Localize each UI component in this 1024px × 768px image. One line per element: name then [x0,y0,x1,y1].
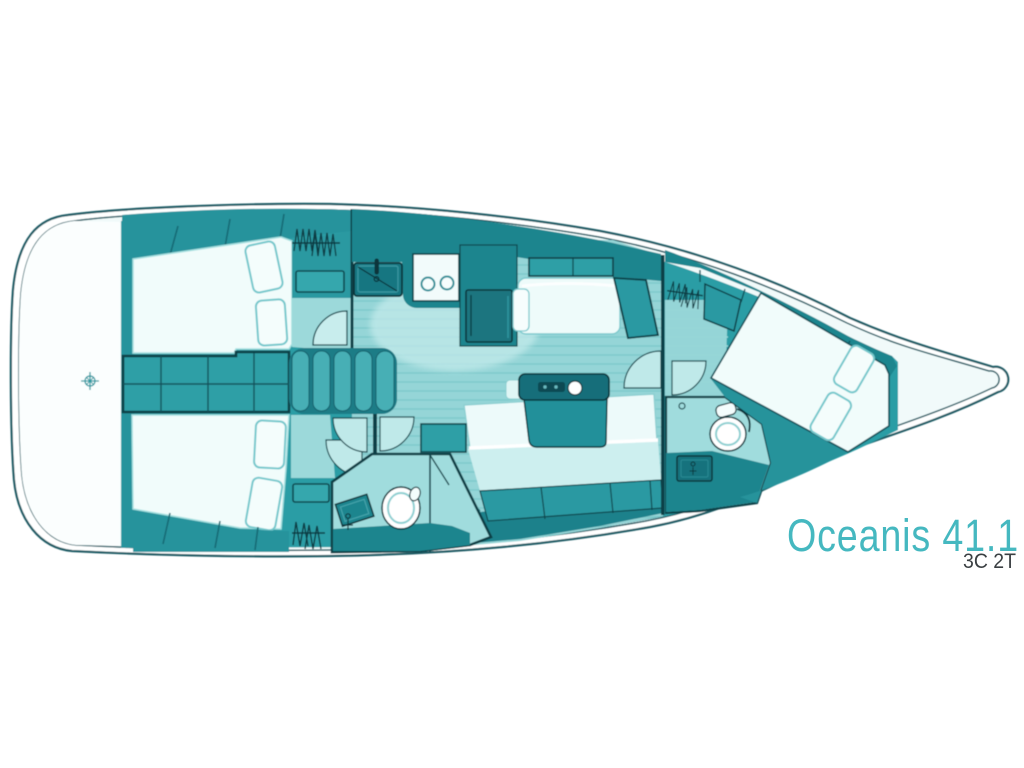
svg-text:3C 2T: 3C 2T [963,550,1016,573]
